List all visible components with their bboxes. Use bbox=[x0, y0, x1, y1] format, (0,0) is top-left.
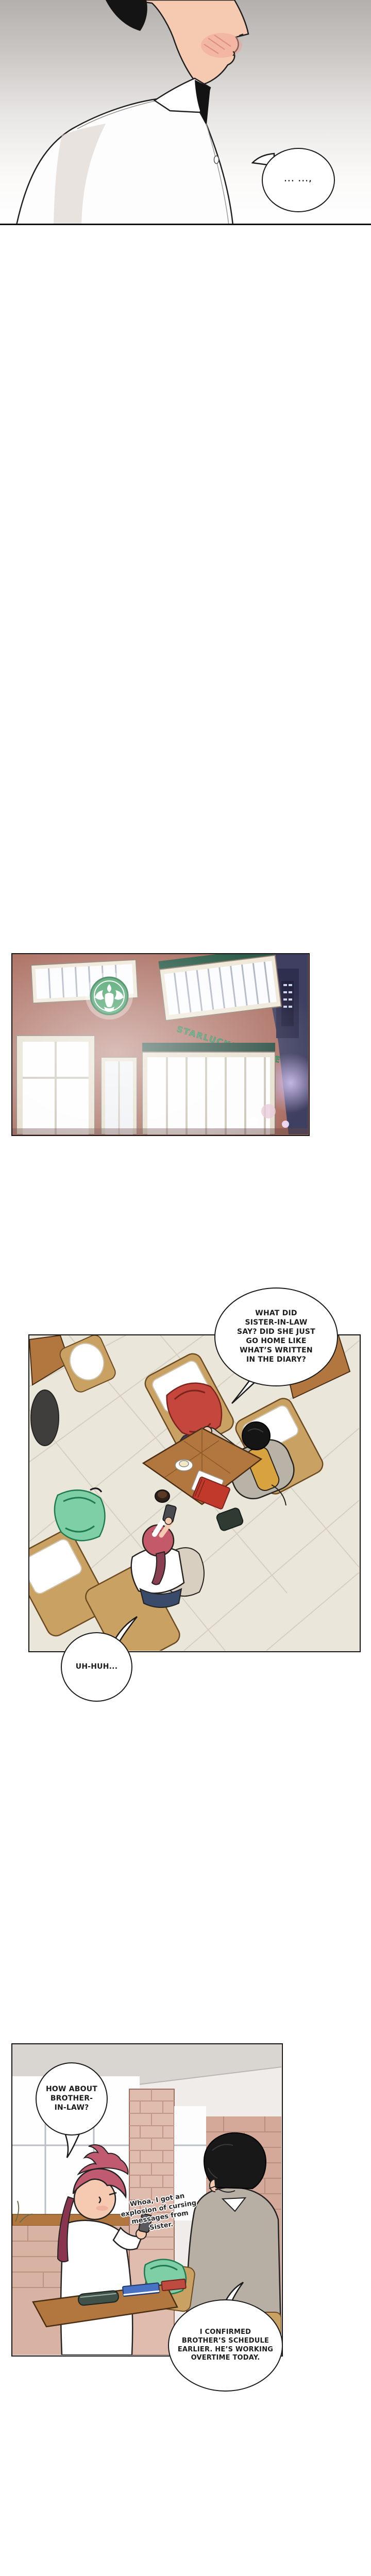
hand bbox=[165, 1517, 172, 1524]
white-shirt bbox=[16, 99, 233, 225]
stool bbox=[31, 1390, 59, 1446]
green-bag bbox=[55, 1488, 105, 1541]
storefront-art: STARLUCKS COFFEE bbox=[12, 954, 308, 1134]
panel-cafe-topdown bbox=[28, 1334, 361, 1652]
cafe-topdown-art bbox=[29, 1335, 359, 1651]
bubble-text: WHAT DID SISTER-IN-LAW SAY? DID SHE JUST… bbox=[237, 1309, 315, 1364]
webtoon-page: ... ..., bbox=[0, 0, 371, 2576]
speech-bubble-confirmed: I CONFIRMED BROTHER’S SCHEDULE EARLIER. … bbox=[168, 2299, 283, 2392]
panel-cafe-exterior: STARLUCKS COFFEE bbox=[11, 953, 310, 1136]
briefcase bbox=[216, 1507, 244, 1532]
bubble-text: ... ..., bbox=[284, 176, 312, 184]
blush bbox=[201, 33, 242, 58]
speech-bubble-how-about: HOW ABOUT BROTHER- IN-LAW? bbox=[36, 2062, 108, 2136]
coffee-cup bbox=[179, 1461, 189, 1467]
speech-bubble-what-did: WHAT DID SISTER-IN-LAW SAY? DID SHE JUST… bbox=[214, 1287, 338, 1386]
handwritten-text: Whoa, I got an explosion of cursing mess… bbox=[121, 2192, 197, 2232]
speech-bubble-uh-huh: UH-HUH... bbox=[61, 1632, 132, 1702]
speech-bubble-ellipsis: ... ..., bbox=[262, 148, 335, 212]
bubble-text: HOW ABOUT BROTHER- IN-LAW? bbox=[46, 2085, 97, 2113]
red-notebook bbox=[161, 2279, 186, 2291]
man-hair bbox=[106, 0, 147, 31]
bubble-text: I CONFIRMED BROTHER’S SCHEDULE EARLIER. … bbox=[178, 2328, 273, 2363]
shirt-button bbox=[214, 156, 219, 164]
bubble-text: UH-HUH... bbox=[76, 1663, 117, 1672]
